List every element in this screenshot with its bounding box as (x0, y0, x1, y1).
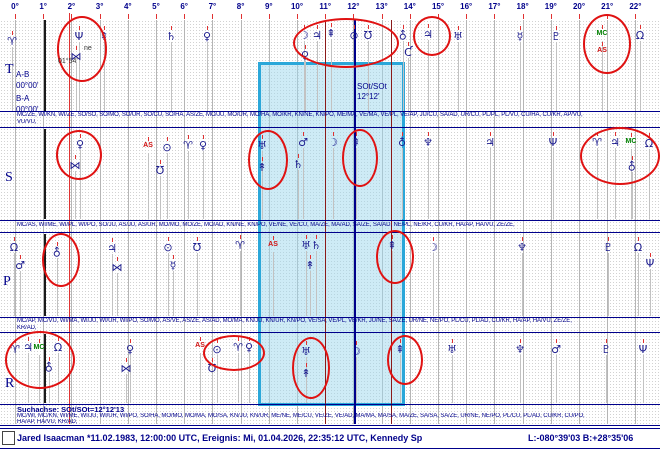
glyph-position-line (310, 271, 311, 316)
glyph-position-line (490, 148, 491, 219)
left-axis-line (44, 20, 46, 111)
row-label-progression: P (3, 274, 11, 290)
glyph-position-line (188, 151, 189, 219)
glyph-tick (12, 31, 13, 35)
node-glyph: Ω (10, 242, 18, 253)
degree-label: 19° (545, 2, 557, 11)
degree-tick (43, 14, 44, 19)
glyph-position-line (428, 148, 429, 219)
degree-label: 2° (68, 2, 76, 11)
neptune-glyph: Ψ (549, 137, 558, 148)
uranus-glyph: ♅ (301, 240, 311, 251)
search-axis-box-value: 12°12' (357, 92, 380, 101)
node-glyph: Ω (636, 30, 644, 41)
aries-glyph: ♈ (7, 36, 17, 47)
glyph-tick (306, 235, 307, 239)
glyph-position-line (197, 253, 198, 316)
degree-tick (635, 14, 636, 19)
glyph-position-line (643, 355, 644, 403)
degree-label: 10° (291, 2, 303, 11)
degree-label: 5° (152, 2, 160, 11)
band-separator-line (0, 448, 660, 449)
highlight-circle (292, 337, 330, 399)
glyph-tick (606, 339, 607, 343)
glyph-tick (638, 237, 639, 241)
degree-label: 12° (347, 2, 359, 11)
hades-glyph: ℧ (156, 165, 164, 176)
glyph-tick (640, 25, 641, 29)
mercury-glyph: ☿ (517, 31, 524, 42)
pluto-glyph: ♇ (601, 344, 611, 355)
glyph-tick (433, 237, 434, 241)
saturn-glyph: ♄ (311, 240, 321, 251)
as-label: AS (143, 142, 153, 149)
glyph-position-line (556, 42, 557, 111)
neptune-glyph: Ψ (639, 344, 648, 355)
chart-subject-info: Jared Isaacman *11.02.1983, 12:00:00 UTC… (17, 433, 422, 443)
mars-glyph: ♂ (298, 137, 308, 148)
glyph-tick (207, 26, 208, 30)
glyph-tick (428, 132, 429, 136)
band-separator-line (0, 232, 660, 233)
degree-tick (325, 14, 326, 19)
row-label-solararc: S (5, 170, 13, 186)
midpoint-list-t-line2: VU/VU, (17, 119, 657, 125)
glyph-tick (310, 255, 311, 259)
highlight-circle (293, 18, 399, 68)
glyph-tick (643, 339, 644, 343)
degree-tick (241, 14, 242, 19)
glyph-tick (298, 154, 299, 158)
glyph-tick (356, 341, 357, 345)
hades-glyph: ℧ (193, 242, 201, 253)
sun-glyph: ⊙ (162, 142, 171, 153)
degree-label: 17° (488, 2, 500, 11)
glyph-position-line (608, 253, 609, 316)
zeusA-glyph: ↟ (305, 260, 314, 271)
degree-label: 20° (573, 2, 585, 11)
left-axis-line (44, 129, 46, 219)
glyph-tick (608, 237, 609, 241)
venus-glyph: ♀ (126, 344, 134, 355)
node-glyph: Ω (634, 242, 642, 253)
midpoint-list-s-line1: MC/AS, WI/ME, WI/PL, WI/PO, SO/JU, AS/JU… (17, 222, 657, 228)
glyph-tick (20, 255, 21, 259)
glyph-position-line (520, 42, 521, 111)
glyph-position-line (173, 271, 174, 316)
bowtie-glyph: ⋈ (112, 262, 123, 273)
degree-tick (156, 14, 157, 19)
glyph-tick (556, 339, 557, 343)
mars-glyph: ♂ (551, 344, 561, 355)
glyph-tick (167, 137, 168, 141)
venus-glyph: ♀ (203, 31, 211, 42)
highlight-circle (203, 335, 265, 371)
glyph-tick (130, 339, 131, 343)
highlight-circle (413, 16, 451, 56)
highlight-circle (42, 233, 80, 287)
as-label: AS (268, 241, 278, 248)
glyph-position-line (638, 253, 639, 316)
band-separator-line (0, 127, 660, 128)
highlight-circle (5, 331, 75, 389)
degree-tick (212, 14, 213, 19)
aries-glyph: ♈ (183, 140, 193, 151)
poseidon-glyph: ♆ (423, 137, 433, 148)
glyph-tick (522, 237, 523, 241)
search-axis-box-label: SOt/SOt (357, 82, 387, 91)
cupido-glyph: Ƈ (404, 47, 412, 58)
glyph-position-line (203, 151, 204, 219)
degree-tick (184, 14, 185, 19)
midpoint-list-t-line1: MC/ZE, WI/KN, WI/ZE, SO/SO, SO/MO, SO/UR… (17, 112, 657, 118)
degree-label: 15° (432, 2, 444, 11)
midpoint-list-r-line2: HA/AP, HA/VU, KR/AD, (17, 419, 657, 425)
band-separator-line (0, 220, 660, 221)
glyph-tick (188, 135, 189, 139)
degree-tick (523, 14, 524, 19)
glyph-tick (117, 257, 118, 261)
glyph-position-line (20, 271, 21, 316)
highlight-circle (56, 130, 102, 180)
mercury-glyph: ☿ (170, 260, 177, 271)
glyph-position-line (402, 148, 403, 219)
glyph-tick (408, 42, 409, 46)
glyph-position-line (316, 251, 317, 316)
resize-handle[interactable] (2, 431, 15, 445)
degree-label: 3° (96, 2, 104, 11)
ab-label: A-B (16, 70, 29, 79)
highlight-circle (376, 230, 414, 284)
row-label-transit: T (5, 62, 14, 78)
highlight-circle (342, 129, 378, 187)
degree-tick (410, 14, 411, 19)
glyph-position-line (207, 42, 208, 111)
highlight-circle (248, 130, 288, 190)
glyph-position-line (126, 374, 127, 403)
degree-label: 6° (180, 2, 188, 11)
glyph-tick (556, 26, 557, 30)
event-marker-name: ne (84, 45, 92, 52)
bowtie-glyph: ⋈ (121, 363, 132, 374)
search-axis-footer: Suchachse: SOt/SOt=12°12'13 (17, 405, 124, 414)
degree-label: 21° (601, 2, 613, 11)
glyph-position-line (160, 176, 161, 219)
glyph-position-line (333, 148, 334, 219)
degree-label: 4° (124, 2, 132, 11)
degree-tick (297, 14, 298, 19)
jupiter-glyph: ♃ (107, 243, 117, 254)
degree-label: 9° (265, 2, 273, 11)
highlight-circle (387, 335, 423, 385)
ba-label: B-A (16, 94, 29, 103)
status-bar: Jared Isaacman *11.02.1983, 12:00:00 UTC… (0, 429, 660, 448)
glyph-tick (112, 238, 113, 242)
degree-label: 16° (460, 2, 472, 11)
glyph-position-line (273, 252, 274, 316)
glyph-position-line (303, 148, 304, 219)
glyph-tick (452, 339, 453, 343)
glyph-position-line (458, 42, 459, 111)
row-label-radix: R (5, 376, 14, 392)
glyph-position-line (356, 357, 357, 403)
saturn-glyph: ♄ (166, 31, 176, 42)
uranus-glyph: ♅ (447, 344, 457, 355)
glyph-tick (171, 26, 172, 30)
glyph-tick (240, 235, 241, 239)
glyph-tick (126, 358, 127, 362)
glyph-position-line (12, 47, 13, 111)
glyph-tick (168, 237, 169, 241)
glyph-position-line (298, 170, 299, 219)
degree-label: 11° (319, 2, 331, 11)
glyph-tick (173, 255, 174, 259)
glyph-tick (553, 132, 554, 136)
poseidon-glyph: ♆ (515, 344, 525, 355)
glyph-position-line (556, 355, 557, 403)
glyph-position-line (171, 42, 172, 111)
glyph-tick (316, 235, 317, 239)
degree-tick (494, 14, 495, 19)
glyph-position-line (200, 353, 201, 403)
degree-label: 14° (404, 2, 416, 11)
event-marker-position: 01°54' (58, 58, 78, 65)
glyph-tick (650, 253, 651, 257)
degree-label: 18° (517, 2, 529, 11)
uranus-glyph: ♅ (453, 31, 463, 42)
ab-value: 00°00' (16, 81, 39, 90)
venus-glyph: ♀ (199, 140, 207, 151)
degree-tick (128, 14, 129, 19)
moon-glyph: ☽ (428, 242, 438, 253)
aries-glyph: ♈ (235, 240, 245, 251)
astrology-ephemeris-window: T S P R A-B 00°00' B-A 00°00' MC/ZE, WI/… (0, 0, 660, 451)
location-coordinates: L:-080°39'03 B:+28°35'06 (528, 433, 633, 443)
neptune-glyph: Ψ (646, 258, 655, 269)
midpoint-list-p-line1: MC/AP, MC/VU, WI/MA, WI/JU, WI/UR, WI/PO… (17, 318, 657, 324)
highlight-circle (583, 14, 631, 74)
glyph-position-line (606, 355, 607, 403)
glyph-position-line (640, 41, 641, 111)
glyph-position-line (408, 58, 409, 111)
glyph-tick (148, 137, 149, 141)
midpoint-list-p-line2: KR/AD, (17, 325, 657, 331)
admetos-glyph: ♁ (398, 137, 406, 148)
glyph-tick (200, 337, 201, 341)
glyph-position-line (522, 253, 523, 316)
glyph-tick (520, 26, 521, 30)
degree-tick (100, 14, 101, 19)
degree-tick (579, 14, 580, 19)
moon-glyph: ☽ (328, 137, 338, 148)
glyph-position-line (305, 61, 306, 111)
glyph-position-line (553, 148, 554, 219)
pluto-glyph: ♇ (551, 31, 561, 42)
glyph-position-line (240, 251, 241, 316)
glyph-position-line (650, 269, 651, 316)
highlight-circle (580, 127, 660, 185)
chart-area[interactable]: T S P R A-B 00°00' B-A 00°00' MC/ZE, WI/… (0, 0, 660, 451)
glyph-tick (303, 132, 304, 136)
degree-label: 8° (237, 2, 245, 11)
glyph-position-line (117, 273, 118, 316)
mars-glyph: ♂ (15, 260, 25, 271)
saturn-glyph: ♄ (293, 159, 303, 170)
degree-tick (466, 14, 467, 19)
glyph-tick (402, 132, 403, 136)
degree-label: 7° (209, 2, 217, 11)
glyph-tick (160, 160, 161, 164)
glyph-tick (197, 237, 198, 241)
glyph-tick (333, 132, 334, 136)
degree-label: 22° (629, 2, 641, 11)
glyph-position-line (433, 253, 434, 316)
degree-tick (15, 14, 16, 19)
sun-glyph: ⊙ (163, 242, 172, 253)
degree-tick (269, 14, 270, 19)
glyph-tick (203, 135, 204, 139)
glyph-tick (403, 25, 404, 29)
glyph-position-line (452, 355, 453, 403)
glyph-position-line (167, 153, 168, 219)
band-separator-line (0, 425, 660, 426)
glyph-position-line (212, 374, 213, 403)
glyph-tick (104, 26, 105, 30)
glyph-tick (273, 236, 274, 240)
glyph-tick (14, 237, 15, 241)
pluto-glyph: ♇ (603, 242, 613, 253)
glyph-position-line (520, 355, 521, 403)
glyph-tick (520, 339, 521, 343)
glyph-position-line (148, 153, 149, 219)
degree-label: 13° (376, 2, 388, 11)
highlight-circle (57, 16, 107, 82)
glyph-tick (458, 26, 459, 30)
moon-glyph: ☽ (351, 346, 361, 357)
band-separator-line (0, 332, 660, 333)
degree-tick (382, 14, 383, 19)
degree-label: 0° (11, 2, 19, 11)
poseidon-glyph: ♆ (517, 242, 527, 253)
glyph-tick (490, 132, 491, 136)
degree-tick (551, 14, 552, 19)
degree-label: 1° (39, 2, 47, 11)
jupiter-glyph: ♃ (485, 137, 495, 148)
